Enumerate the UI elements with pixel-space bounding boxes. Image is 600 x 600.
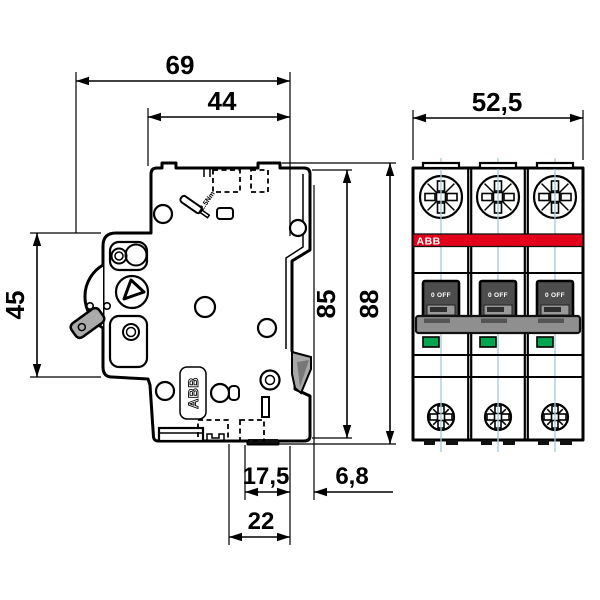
brand-plate-label: ABB: [185, 377, 201, 409]
dim-label-88: 88: [354, 290, 384, 319]
top-tab: [480, 163, 516, 168]
bottom-foot: [560, 440, 572, 445]
toggle-state-label: 0 OFF: [488, 292, 508, 299]
tie-bar-slot: [424, 319, 450, 324]
front-view: ABB 0 OFF 0 OFF 0 OFF: [413, 158, 583, 452]
dim-label-69: 69: [166, 50, 195, 80]
dimension-rear-depth: 6,8: [314, 185, 393, 500]
dimension-width-front: 52,5: [413, 87, 583, 160]
rivet: [154, 205, 172, 223]
bottom-foot: [538, 440, 549, 445]
status-indicator: [423, 337, 439, 347]
dimension-height-body: 85: [311, 170, 352, 438]
dim-label-22: 22: [248, 508, 275, 535]
dim-label-85: 85: [311, 290, 341, 319]
rivet: [290, 220, 306, 236]
top-tab: [537, 163, 573, 168]
dimension-depth-upper: 44: [148, 86, 290, 166]
bottom-foot: [503, 440, 515, 445]
toggle-switch[interactable]: 0 OFF: [423, 281, 459, 318]
bottom-foot: [446, 440, 458, 445]
side-view: 2.5Nm ABB: [69, 163, 311, 444]
rivet: [258, 319, 276, 337]
toggle-state-label: 0 OFF: [431, 292, 451, 299]
rivet: [261, 371, 280, 390]
toggle-switch[interactable]: 0 OFF: [480, 281, 516, 318]
drawing-canvas: 2.5Nm ABB: [0, 0, 600, 600]
status-indicator: [480, 337, 496, 347]
toggle-state-label: 0 OFF: [545, 292, 565, 299]
bottom-foot: [424, 440, 435, 445]
bottom-terminal-block: [159, 428, 203, 441]
dim-label-6-8: 6,8: [335, 463, 368, 490]
toggle-switch[interactable]: 0 OFF: [537, 281, 573, 318]
dim-label-52-5: 52,5: [472, 87, 523, 117]
status-indicator: [537, 337, 553, 347]
dim-label-17-5: 17,5: [243, 463, 290, 490]
dim-label-44: 44: [208, 86, 237, 116]
toggle-lever: [69, 306, 106, 340]
tie-bar-slot: [481, 319, 507, 324]
dimension-din-slot: 22: [229, 444, 290, 545]
pivot-hole: [104, 303, 110, 309]
tie-bar-slot: [538, 319, 564, 324]
brand-band-label: ABB: [417, 236, 441, 248]
pivot-hole: [87, 303, 93, 309]
rivet: [156, 382, 174, 400]
dim-label-45: 45: [0, 291, 30, 320]
top-tab: [423, 163, 459, 168]
rivet: [211, 384, 229, 402]
bottom-foot: [481, 440, 492, 445]
rivet: [195, 297, 215, 317]
